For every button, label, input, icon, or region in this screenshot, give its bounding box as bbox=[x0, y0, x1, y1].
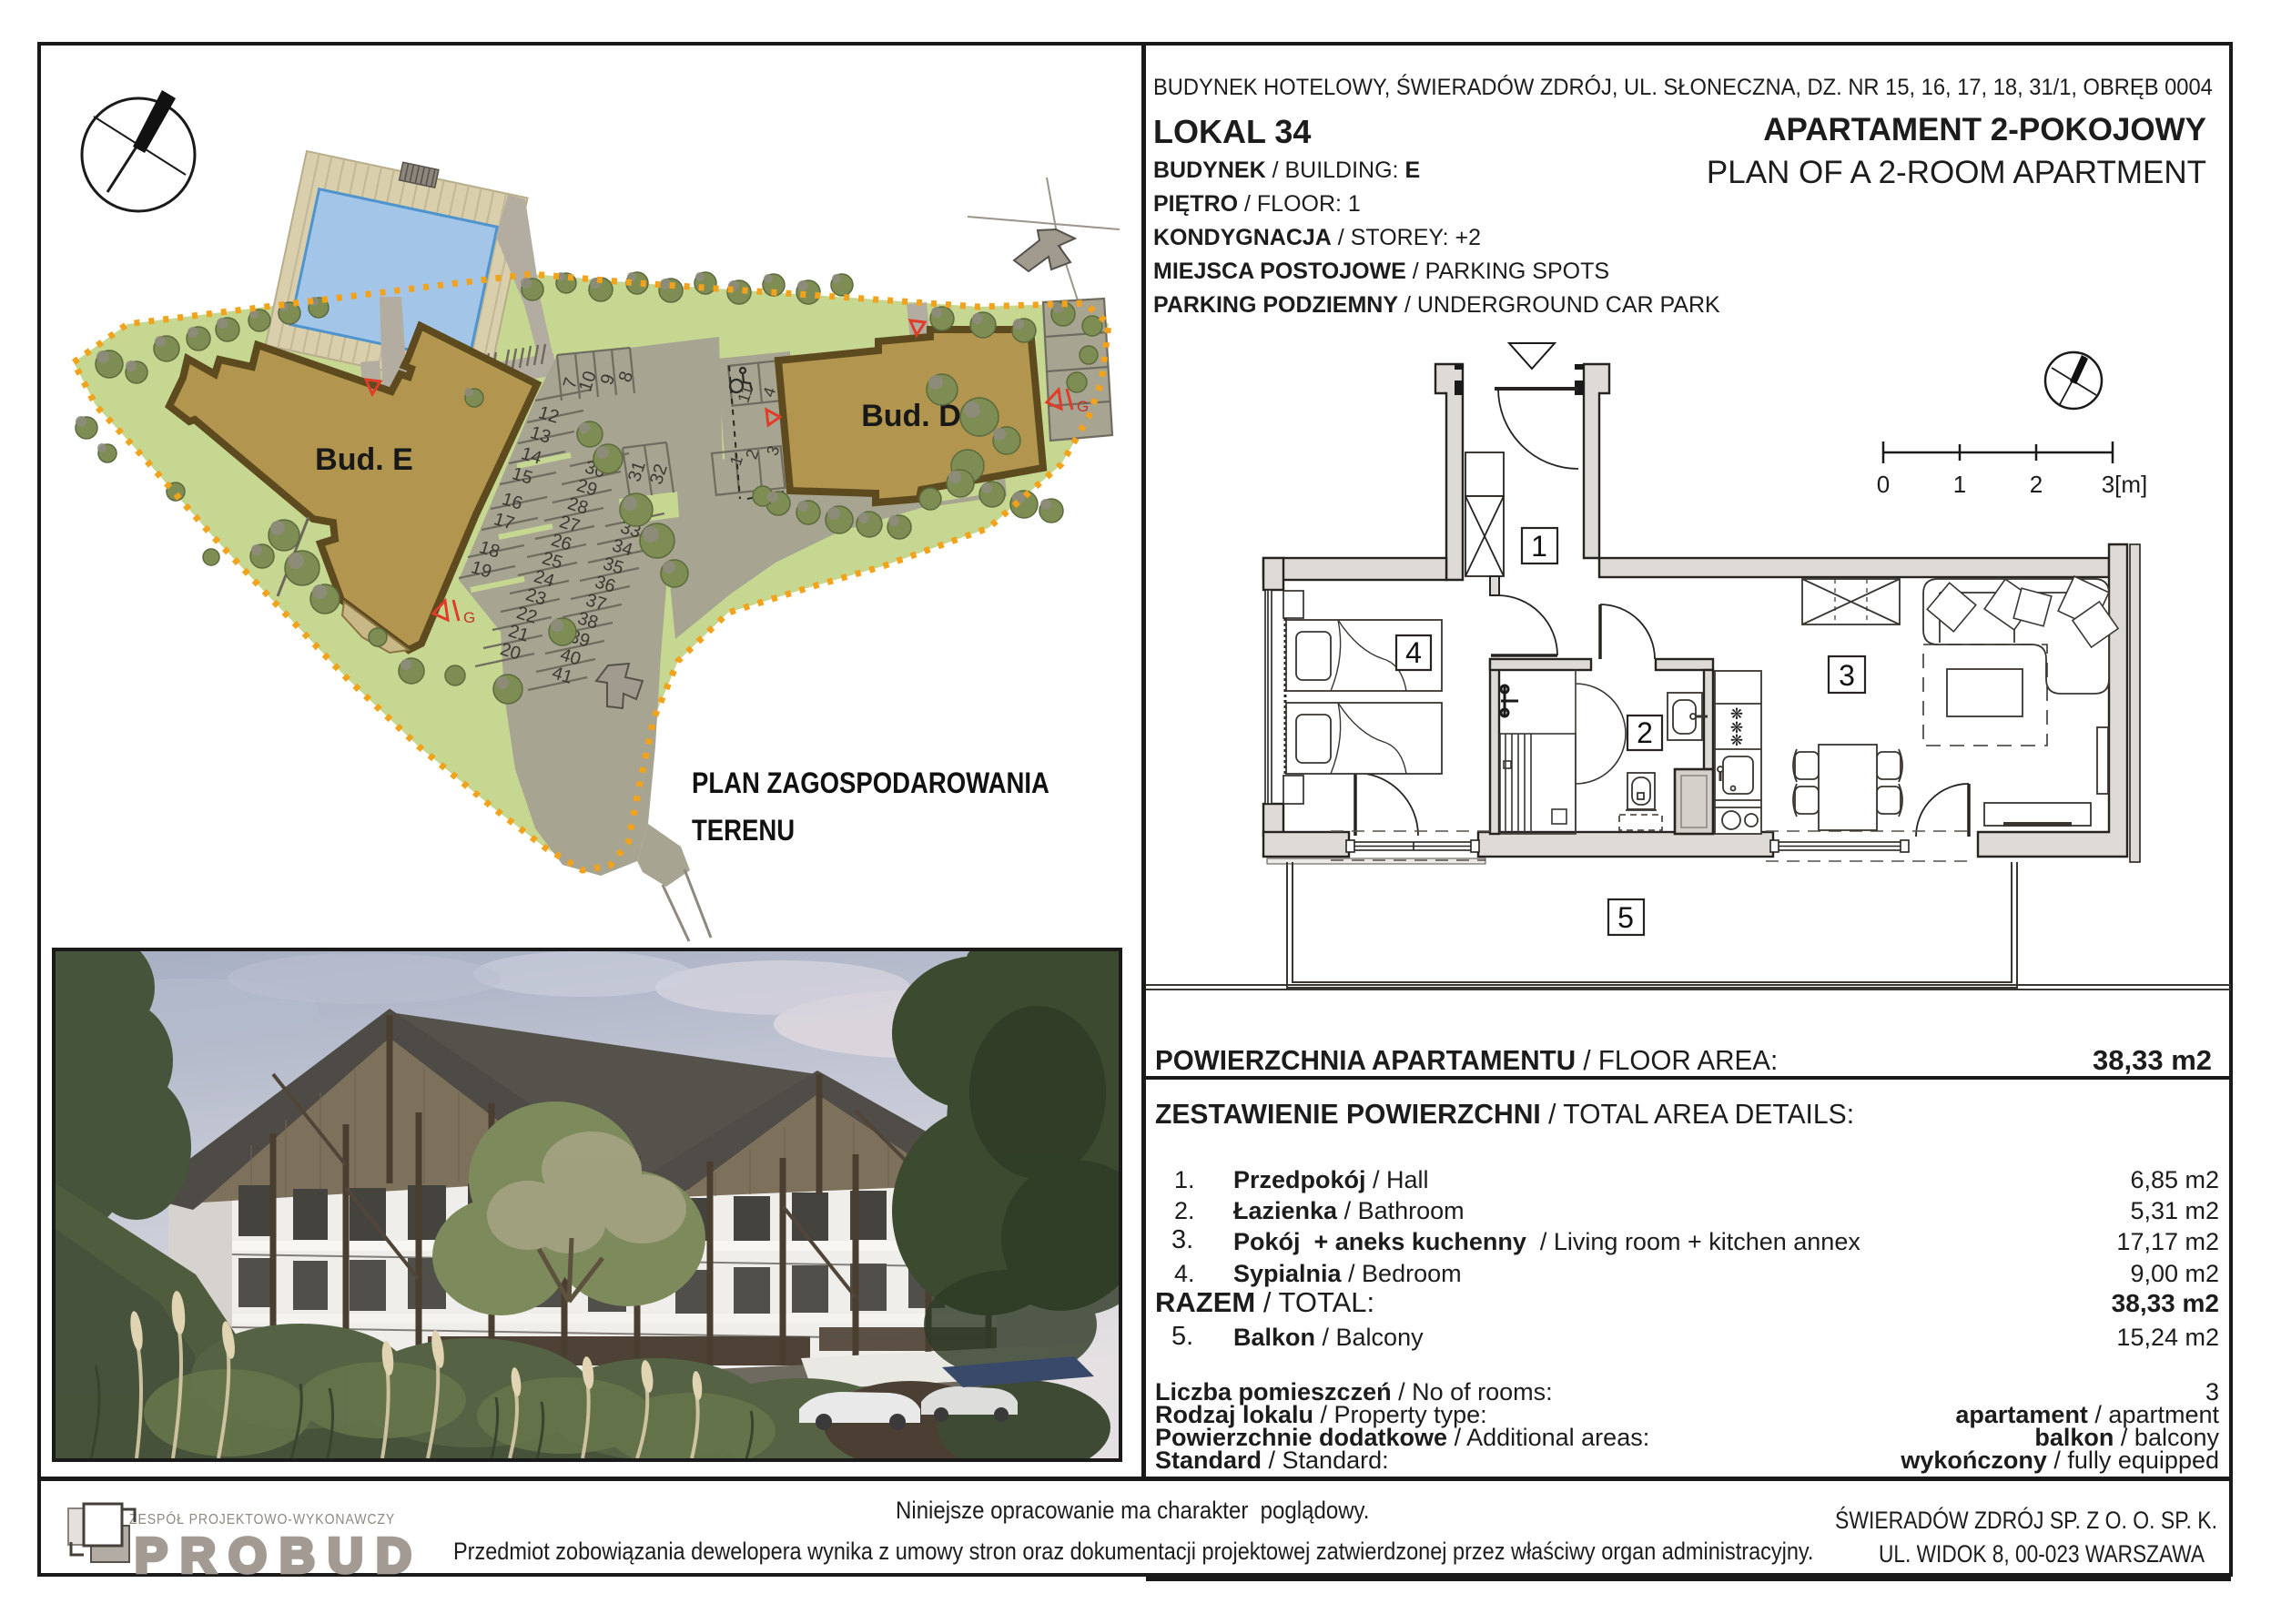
svg-text:1: 1 bbox=[1531, 530, 1547, 563]
svg-text:2: 2 bbox=[2030, 471, 2043, 498]
svg-text:Bud. E: Bud. E bbox=[315, 442, 413, 477]
svg-text:5: 5 bbox=[1617, 901, 1634, 934]
svg-text:0: 0 bbox=[1877, 471, 1890, 498]
svg-text:4: 4 bbox=[1405, 636, 1422, 669]
svg-text:3[m]: 3[m] bbox=[2102, 471, 2148, 498]
svg-text:1: 1 bbox=[1953, 471, 1966, 498]
svg-text:G: G bbox=[463, 609, 475, 626]
svg-text:3: 3 bbox=[1839, 659, 1855, 692]
svg-text:❋: ❋ bbox=[1730, 732, 1743, 749]
svg-text:2: 2 bbox=[1637, 716, 1653, 749]
